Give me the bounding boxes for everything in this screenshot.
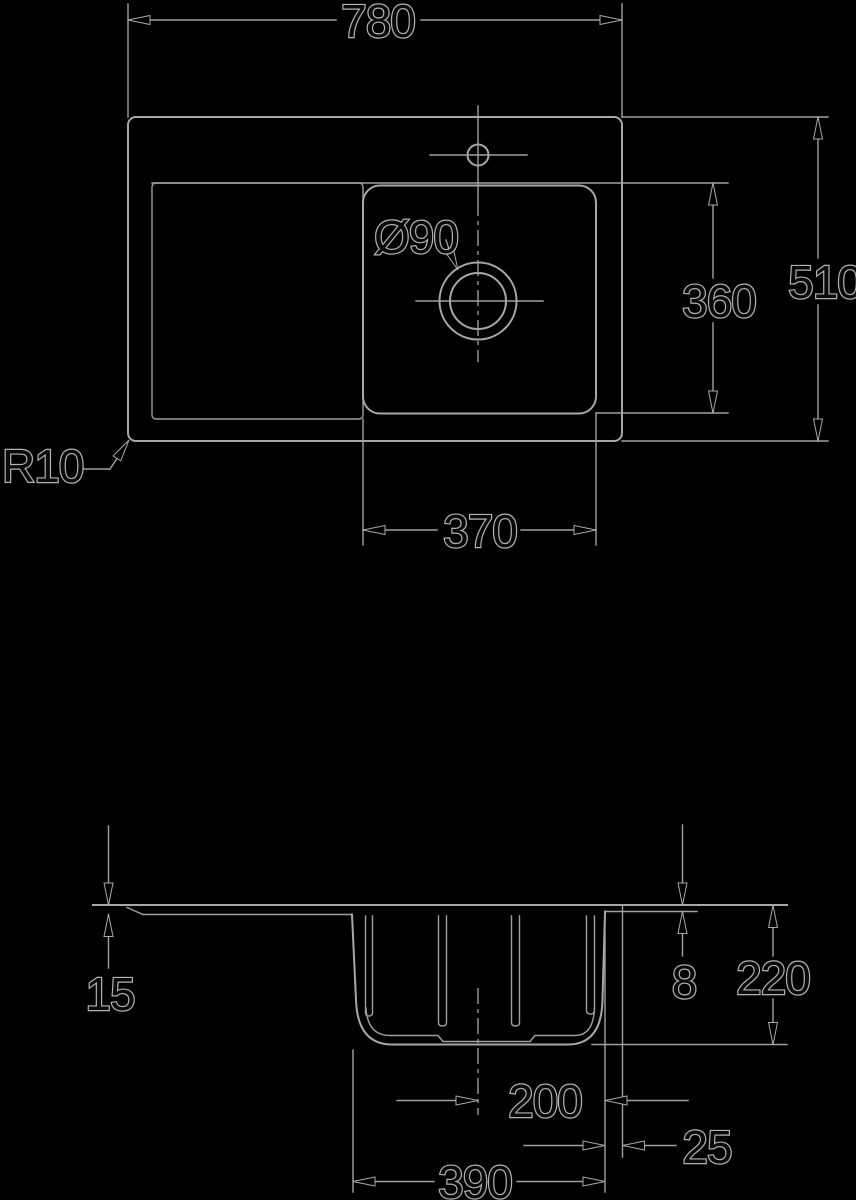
leader-corner-radius [78,440,129,469]
dimension-labels: 780 510 360 Ø90 370 R10 15 8 220 200 25 … [2,0,856,1200]
arrowhead-up [678,912,687,934]
arrowhead-down [104,883,113,905]
bowl-rib-3 [512,916,520,1026]
arrowhead-right [574,526,596,535]
arrowhead-up [814,117,823,139]
sink-outer-outline [128,117,622,441]
arrowhead-up [709,183,718,205]
dim-8 [678,825,687,956]
arrowhead-down [678,883,687,905]
arrowhead-left [605,1096,627,1105]
dim-25 [524,1141,676,1150]
arrowhead-up [104,915,113,937]
arrowhead-left [623,1141,645,1150]
dim-390-label: 390 [438,1156,512,1200]
arrowhead-down [814,419,823,441]
arrowhead-left [353,1177,375,1186]
arrowhead-down [709,391,718,413]
dim-corner-radius-label: R10 [2,440,83,492]
arrowhead-down [769,1023,778,1045]
dim-8-label: 8 [672,956,697,1008]
leader-line [110,459,117,470]
arrowhead-right [456,1096,478,1105]
dim-220-label: 220 [736,952,810,1004]
bowl-rib-2 [439,916,447,1026]
drainboard-outline [152,183,363,419]
arrowhead-right [583,1141,605,1150]
arrowhead-right [583,1177,605,1186]
dim-15-label: 15 [85,968,134,1020]
dim-25-label: 25 [682,1121,731,1173]
dim-drain-diameter-label: Ø90 [374,211,458,263]
dim-360-label: 360 [682,275,756,327]
dim-370-label: 370 [443,505,517,557]
bowl-section-inner-bottom [366,1008,595,1042]
bowl-rib-1 [366,916,373,1016]
dim-15 [104,826,113,968]
arrowhead-left [128,16,150,25]
arrowhead-left [363,526,385,535]
dim-780-label: 780 [341,0,415,47]
bowl-rib-4 [587,916,595,1014]
dim-200-label: 200 [508,1075,582,1127]
ledge-line-left [127,908,352,915]
arrowhead-right [600,16,622,25]
sink-technical-drawing: 780 510 360 Ø90 370 R10 15 8 220 200 25 … [0,0,856,1200]
arrowhead-up [769,906,778,928]
dim-510-label: 510 [788,256,856,308]
leader-arrowhead [113,440,129,461]
drawing-canvas: 780 510 360 Ø90 370 R10 15 8 220 200 25 … [0,0,856,1200]
